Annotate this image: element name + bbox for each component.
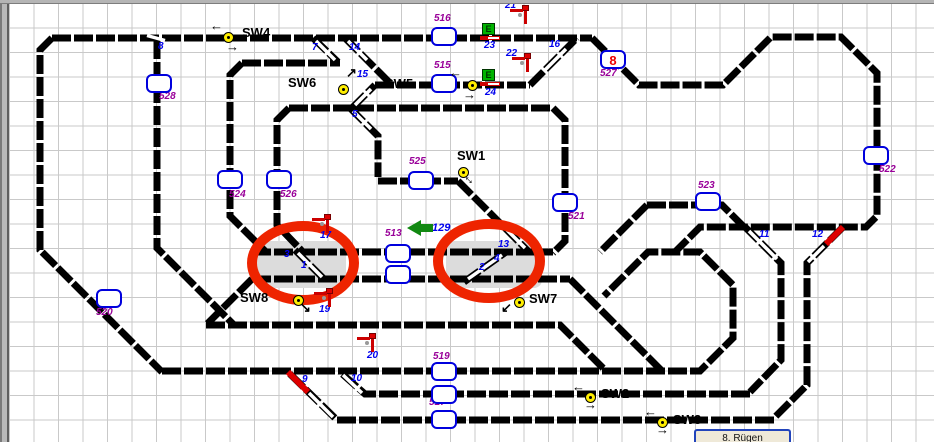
arrow-24-left: ← <box>449 66 462 79</box>
switch-circle-sw7[interactable] <box>514 297 525 308</box>
label-sw2: SW2 <box>601 387 629 400</box>
switch-number-16: 16 <box>549 40 560 50</box>
label-sw4: SW4 <box>242 26 270 39</box>
signal-lamp <box>524 53 531 59</box>
signal-dot <box>518 13 522 17</box>
block-518[interactable] <box>431 385 457 404</box>
entry-signal-bar <box>480 82 500 86</box>
label-sw6: SW6 <box>288 76 316 89</box>
entry-signal-24[interactable]: E <box>480 69 500 87</box>
signal-number-23: 23 <box>484 41 495 51</box>
signal-arm <box>312 218 325 221</box>
block-number-520: 520 <box>96 308 113 318</box>
block-number-526: 526 <box>280 190 297 200</box>
label-sw1: SW1 <box>457 149 485 162</box>
switch-number-1: 1 <box>301 261 307 271</box>
switch-number-15: 15 <box>357 70 368 80</box>
window-edge-top <box>0 0 934 4</box>
switch-number-4: 4 <box>494 254 500 264</box>
signal-lamp <box>324 214 331 220</box>
arrow-24-right: → <box>463 88 476 101</box>
block-525[interactable] <box>408 171 434 190</box>
switch-number-9: 9 <box>302 375 308 385</box>
block-516[interactable] <box>431 27 457 46</box>
arrow-sw8: ↘ <box>300 301 311 314</box>
signal-number-24: 24 <box>485 88 496 98</box>
signal-arm <box>510 9 523 12</box>
signal-dot <box>520 61 524 65</box>
switch-number-3: 3 <box>284 250 290 260</box>
label-sw8: SW8 <box>240 291 268 304</box>
block-number-519: 519 <box>433 352 450 362</box>
arrow-sw3-right: → <box>656 423 669 436</box>
signal-dot <box>322 296 326 300</box>
signal-arm <box>314 292 327 295</box>
green-arrow-tail <box>420 224 433 232</box>
entry-signal-bar <box>480 36 500 40</box>
block-number-523: 523 <box>698 181 715 191</box>
track-plan-window: SW4SW6SW5SW1SW8SW7SW2SW38714155162324212… <box>0 0 934 442</box>
entry-signal-bar-red <box>481 83 488 85</box>
switch-number-13: 13 <box>498 240 509 250</box>
block-513[interactable] <box>385 244 411 263</box>
entry-signal-letter: E <box>482 23 495 35</box>
tab-layout-page[interactable]: 8. Rügen <box>694 429 791 442</box>
arrow-sw4-left: ← <box>210 19 223 32</box>
symbol-layer: SW4SW6SW5SW1SW8SW7SW2SW38714155162324212… <box>0 0 934 442</box>
block-number-528: 528 <box>159 92 176 102</box>
signal-arm <box>357 337 370 340</box>
block-523[interactable] <box>695 192 721 211</box>
signal-lamp <box>522 5 529 11</box>
signal-lamp <box>369 333 376 339</box>
block-517[interactable] <box>431 410 457 429</box>
switch-number-14: 14 <box>349 43 360 53</box>
switch-number-5: 5 <box>352 110 358 120</box>
green-arrow-head <box>407 220 421 236</box>
arrow-sw3-left: ← <box>644 405 657 418</box>
signal-17[interactable] <box>312 214 334 234</box>
block-519[interactable] <box>431 362 457 381</box>
window-edge-left <box>0 0 9 442</box>
arrow-sw2-right: → <box>584 398 597 411</box>
switch-number-8: 8 <box>158 42 164 52</box>
signal-dot <box>365 341 369 345</box>
label-sw5: SW5 <box>385 77 413 90</box>
arrow-sw7: ↙ <box>501 301 512 314</box>
train-arrow-129[interactable] <box>407 220 434 236</box>
block-522[interactable] <box>863 146 889 165</box>
switch-number-10: 10 <box>351 374 362 384</box>
switch-circle-15[interactable] <box>338 84 349 95</box>
block-527[interactable]: 8 <box>600 50 626 69</box>
switch-number-7: 7 <box>312 43 318 53</box>
switch-number-11: 11 <box>759 230 769 240</box>
signal-19[interactable] <box>314 288 336 308</box>
block-514[interactable] <box>385 265 411 284</box>
signal-arm <box>512 57 525 60</box>
train-number-red: 8 <box>609 53 616 68</box>
block-528[interactable] <box>146 74 172 93</box>
block-number-516: 516 <box>434 14 451 24</box>
signal-21[interactable] <box>510 5 532 25</box>
block-526[interactable] <box>266 170 292 189</box>
block-number-522: 522 <box>879 165 896 175</box>
signal-22[interactable] <box>512 53 534 73</box>
entry-signal-letter: E <box>482 69 495 81</box>
signal-dot <box>320 222 324 226</box>
label-sw3: SW3 <box>673 413 701 426</box>
entry-signal-23[interactable]: E <box>480 23 500 41</box>
entry-signal-bar-red <box>481 37 488 39</box>
arrow-15-up: ↗ <box>346 66 357 79</box>
label-sw7: SW7 <box>529 292 557 305</box>
switch-dot <box>518 301 521 304</box>
block-number-527: 527 <box>600 69 617 79</box>
block-521[interactable] <box>552 193 578 212</box>
switch-dot <box>342 88 345 91</box>
train-number-129: 129 <box>432 223 450 234</box>
arrow-sw4-right: → <box>226 40 239 53</box>
signal-20[interactable] <box>357 333 379 353</box>
block-number-525: 525 <box>409 157 426 167</box>
block-number-521: 521 <box>568 212 585 222</box>
switch-number-12: 12 <box>812 230 823 240</box>
arrow-sw2-left: ← <box>572 380 585 393</box>
block-520[interactable] <box>96 289 122 308</box>
block-524[interactable] <box>217 170 243 189</box>
block-number-524: 524 <box>229 190 246 200</box>
signal-lamp <box>326 288 333 294</box>
block-number-513: 513 <box>385 229 402 239</box>
switch-number-2: 2 <box>479 263 485 273</box>
